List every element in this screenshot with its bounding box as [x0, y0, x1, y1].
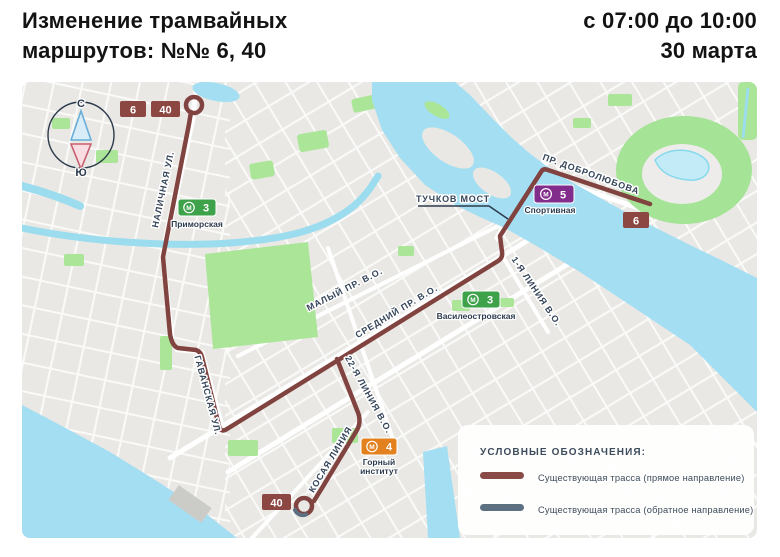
- legend-title: УСЛОВНЫЕ ОБОЗНАЧЕНИЯ:: [480, 447, 646, 458]
- infographic: Изменение трамвайных маршрутов: №№ 6, 40…: [0, 0, 780, 557]
- metro-logo-letter: М: [369, 444, 374, 451]
- compass-north-label: С: [77, 98, 85, 110]
- metro-station-name: Василеостровская: [437, 311, 516, 321]
- metro-logo-letter: М: [186, 205, 191, 212]
- badge-40-end-label: 40: [270, 498, 282, 510]
- metro-line-number: 5: [560, 190, 566, 202]
- legend-swatch-reverse: [480, 504, 524, 511]
- legend: УСЛОВНЫЕ ОБОЗНАЧЕНИЯ: Существующая трасс…: [458, 425, 754, 535]
- badge-40-start-label: 40: [159, 105, 171, 117]
- map: ТУЧКОВ МОСТ НАЛИЧНАЯ УЛ. ГАВАНСКАЯ УЛ. М…: [0, 0, 780, 557]
- metro-station-name: Спортивная: [525, 205, 576, 215]
- metro-logo-letter: М: [543, 192, 548, 199]
- metro-station-name: Приморская: [171, 219, 223, 229]
- legend-label-forward: Существующая трасса (прямое направление): [538, 473, 745, 483]
- compass-south-label: Ю: [75, 167, 86, 179]
- metro-line-number: 3: [487, 295, 493, 307]
- metro-logo-letter: М: [470, 297, 475, 304]
- metro-line-number: 3: [203, 203, 209, 215]
- legend-swatch-forward: [480, 472, 524, 479]
- metro-gorny-institut: М 4 Горный институт: [360, 438, 398, 476]
- metro-primorskaya: М 3 Приморская: [171, 199, 223, 229]
- badge-6-start-label: 6: [130, 105, 136, 117]
- bridge-callout-label: ТУЧКОВ МОСТ: [416, 194, 490, 204]
- metro-station-name: институт: [360, 466, 398, 476]
- badge-6-end-label: 6: [633, 216, 639, 228]
- legend-label-reverse: Существующая трасса (обратное направлени…: [538, 505, 753, 515]
- metro-line-number: 4: [386, 442, 393, 454]
